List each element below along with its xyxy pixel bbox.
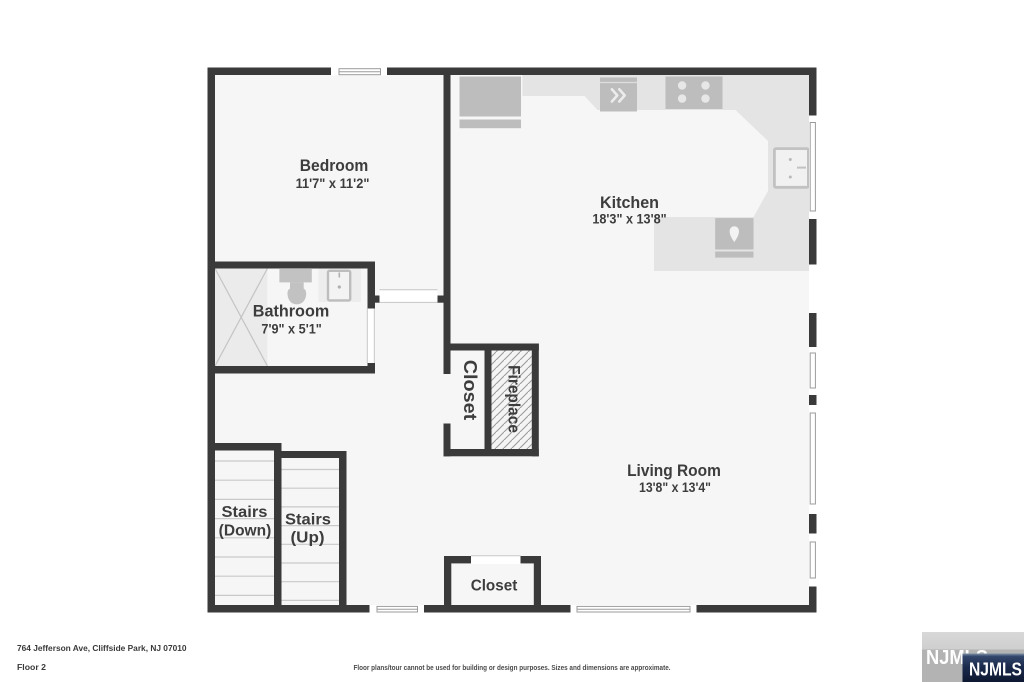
svg-text:NJMLS: NJMLS [969, 660, 1022, 680]
svg-text:Closet: Closet [460, 360, 480, 421]
svg-text:Bedroom: Bedroom [300, 156, 369, 175]
svg-text:13'8" x 13'4": 13'8" x 13'4" [639, 479, 711, 495]
svg-text:(Up): (Up) [291, 530, 325, 547]
svg-text:764 Jefferson Ave, Cliffside P: 764 Jefferson Ave, Cliffside Park, NJ 07… [17, 643, 187, 653]
svg-text:11'7" x 11'2": 11'7" x 11'2" [296, 175, 370, 191]
svg-text:Floor 2: Floor 2 [17, 662, 46, 672]
svg-text:(Down): (Down) [219, 523, 272, 540]
svg-text:Bathroom: Bathroom [253, 301, 330, 320]
svg-text:18'3" x 13'8": 18'3" x 13'8" [592, 211, 666, 227]
svg-text:Floor plans/tour cannot be use: Floor plans/tour cannot be used for buil… [354, 665, 671, 672]
svg-text:Stairs: Stairs [285, 512, 331, 529]
svg-text:Kitchen: Kitchen [600, 193, 659, 212]
svg-text:Stairs: Stairs [222, 504, 268, 521]
svg-text:Fireplace: Fireplace [505, 365, 524, 433]
svg-text:7'9" x 5'1": 7'9" x 5'1" [261, 320, 321, 336]
svg-text:Closet: Closet [471, 577, 518, 594]
svg-text:Living Room: Living Room [627, 461, 721, 480]
